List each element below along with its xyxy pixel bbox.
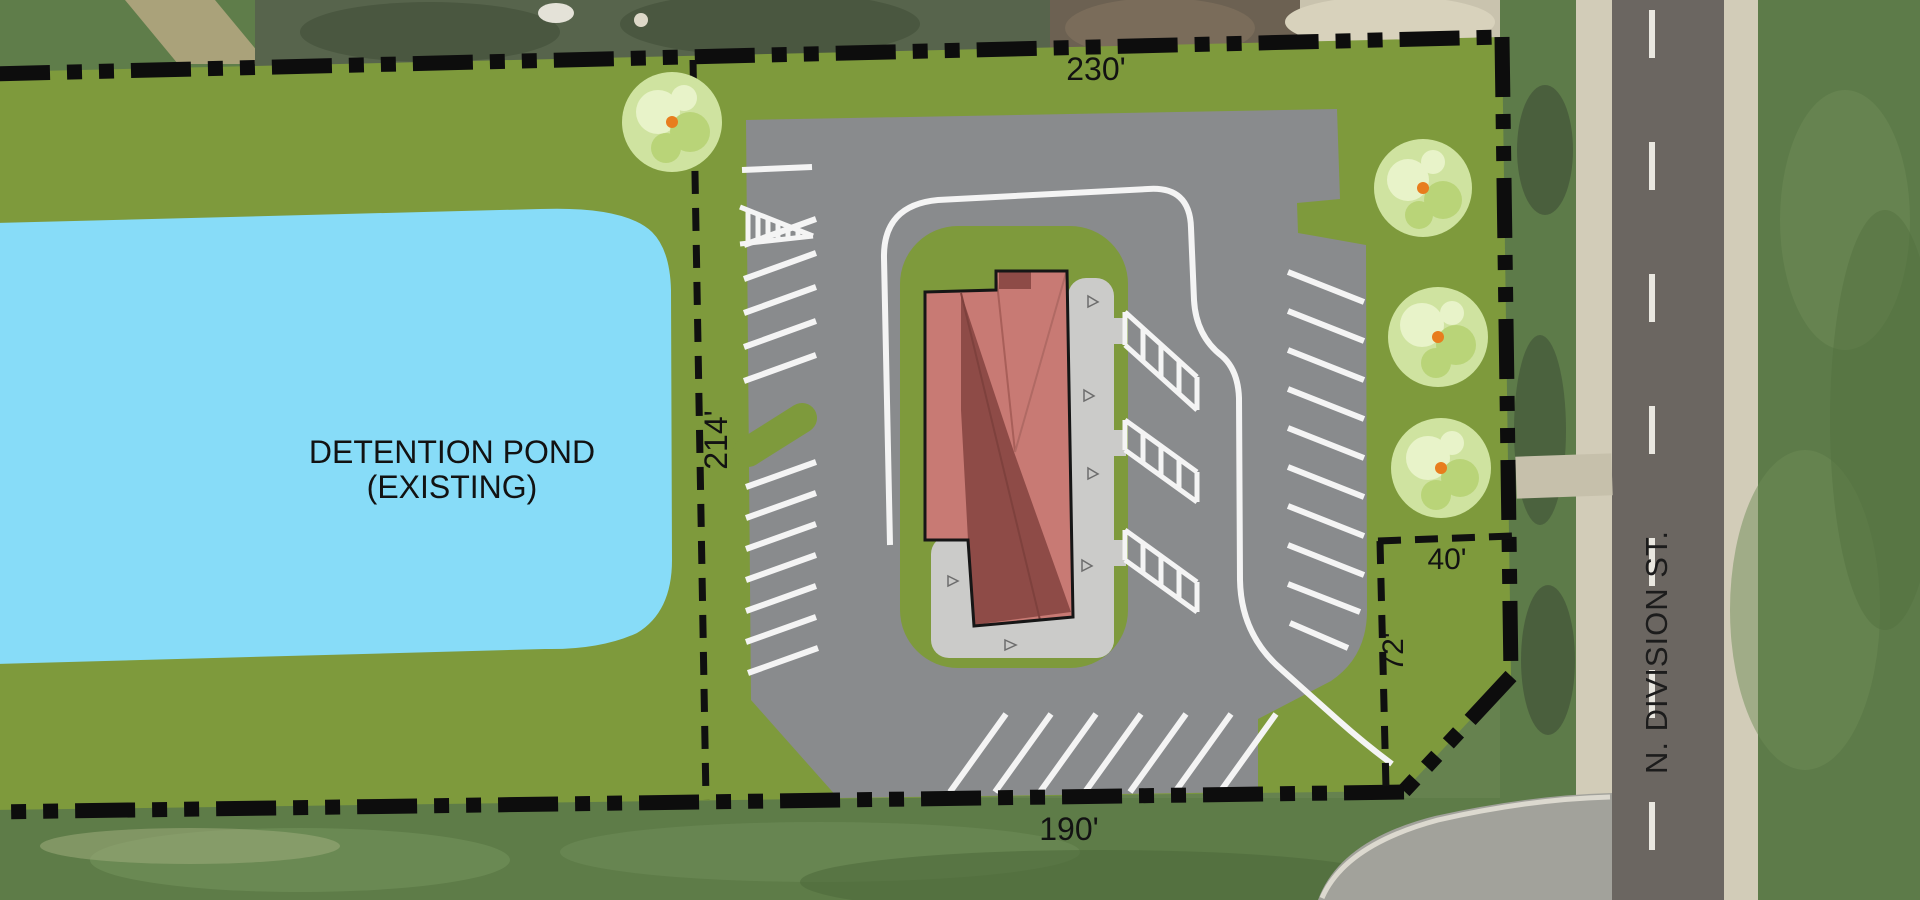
tree [622, 72, 722, 172]
north-dimension-label: 230' [1066, 51, 1126, 87]
tree-shade [651, 133, 681, 163]
aerial-dry-grass-streak [40, 828, 340, 864]
aerial-tree-blob [300, 2, 560, 62]
parking-stripe [742, 167, 812, 170]
tree-center-dot [1432, 331, 1444, 343]
tree-shade [1421, 348, 1451, 378]
site-plan-canvas: 230' 214' 190' 40' 72' DETENTION POND (E… [0, 0, 1920, 900]
south-dimension-label: 190' [1039, 811, 1099, 847]
outlot-depth-label: 72' [1377, 632, 1410, 671]
tree-highlight [1421, 150, 1445, 174]
tree-highlight [671, 85, 697, 111]
pond-name-label: DETENTION POND [309, 434, 595, 470]
road-shoulder-west [1576, 0, 1612, 900]
walkway-arm [1100, 430, 1126, 456]
tree-center-dot [1435, 462, 1447, 474]
tree-center-dot [666, 116, 678, 128]
tree [1391, 418, 1491, 518]
roadside-tree-blob [1521, 585, 1575, 735]
west-dimension-label: 214' [698, 410, 734, 470]
tree [1374, 139, 1472, 237]
tree-shade [1421, 480, 1451, 510]
tree-highlight [1440, 431, 1464, 455]
existing-gravel-drive-stub [1515, 453, 1612, 498]
street-name-label: N. DIVISION ST. [1639, 530, 1674, 774]
outlot-width-label: 40' [1427, 543, 1466, 576]
tree-center-dot [1417, 182, 1429, 194]
aerial-structure-dot [634, 13, 648, 27]
road-shoulder-east [1724, 0, 1758, 900]
pond-status-label: (EXISTING) [367, 469, 538, 505]
walkway-arm [1100, 540, 1126, 566]
roadside-tree-blob [1517, 85, 1573, 215]
walkway-arm [1100, 318, 1126, 344]
tree [1388, 287, 1488, 387]
tree-highlight [1440, 301, 1464, 325]
tree-shade [1405, 201, 1433, 229]
aerial-structure-dot [538, 3, 574, 23]
roof-notch-shadow [999, 272, 1031, 289]
